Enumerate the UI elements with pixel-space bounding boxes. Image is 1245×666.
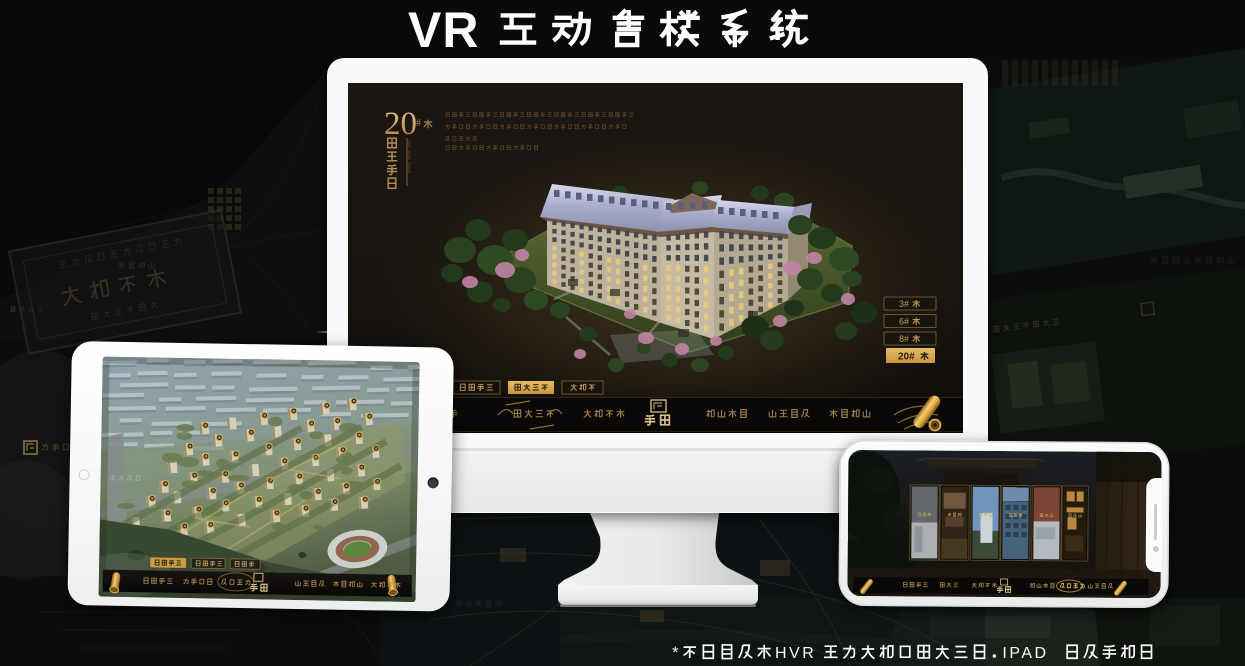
svg-text:6#: 6# — [899, 317, 909, 327]
svg-text:THE SAND TABLE: THE SAND TABLE — [407, 140, 412, 174]
svg-text:20#: 20# — [898, 352, 915, 363]
svg-text:*: * — [672, 643, 679, 662]
svg-text:IPAD: IPAD — [1002, 645, 1048, 662]
svg-text:3#: 3# — [899, 299, 909, 309]
svg-text:8#: 8# — [899, 334, 909, 344]
svg-text:20: 20 — [384, 106, 417, 142]
svg-text:HVR: HVR — [775, 645, 816, 662]
svg-text:VR: VR — [408, 2, 479, 58]
svg-text:#: # — [416, 118, 421, 129]
